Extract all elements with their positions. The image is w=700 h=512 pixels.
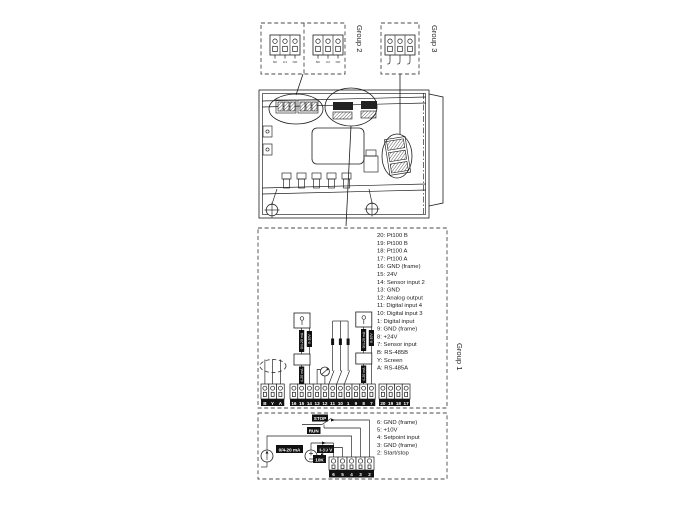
main-terminal-strip: 16 15 14 13 12 11 10 1 9 8 7 — [290, 384, 375, 406]
terminal-number: 19 — [388, 401, 394, 406]
setpoint-terminal-strip: 6 5 4 3 2 — [329, 457, 374, 478]
terminal-description: A: RS-485A — [377, 366, 408, 372]
signal-range-label: 0-10V — [370, 333, 374, 343]
wiring-diagram-page: NC C1 NO NC C2 NO Group 2 Group 3 — [0, 0, 700, 512]
terminal-number: 15 — [299, 401, 305, 406]
terminal-description: 13: GND — [377, 288, 400, 294]
terminal-description: 14: Sensor input 2 — [377, 280, 425, 286]
group2-label: Group 2 — [355, 25, 364, 52]
analog-output-meter — [317, 367, 329, 384]
setpoint-description-list: 6: GND (frame) 5: +10V 4: Setpoint input… — [377, 420, 420, 456]
sensor-assembly-right: 0/4-20 mA 0-10V 4-20 mA — [356, 312, 374, 384]
signal-output-label: 4-20 mA — [362, 367, 366, 381]
group1-label: Group 1 — [455, 343, 464, 370]
wire-hook-icon — [397, 59, 400, 65]
potentiometer-label: 10K — [315, 457, 324, 462]
signal-output-label: 4-20 mA — [300, 368, 304, 382]
terminal-description: 18: Pt100 A — [377, 249, 408, 255]
terminal-description: 12: Analog output — [377, 295, 423, 301]
terminal-description: 15: 24V — [377, 272, 397, 278]
digital-input-switches — [329, 321, 350, 384]
wiring-diagram: NC C1 NO NC C2 NO Group 2 Group 3 — [0, 0, 700, 512]
pin-label: NO — [336, 60, 341, 64]
terminal-number: 13 — [315, 401, 321, 406]
terminal-number: 4 — [350, 472, 353, 477]
wire-hook-icon — [387, 59, 390, 65]
terminal-description: 16: GND (frame) — [377, 264, 421, 270]
terminal-description: 8: +24V — [377, 334, 398, 340]
terminal-number: 7 — [370, 401, 373, 406]
terminal-number: 11 — [330, 401, 335, 406]
signal-range-label: 0/4-20 mA — [362, 331, 366, 348]
pt100-terminal-strip: 20 19 18 17 — [379, 384, 410, 406]
stop-label: STOP — [314, 416, 326, 421]
terminal-description: 11: Digital input 4 — [377, 303, 423, 309]
terminal-description: 7: Sensor input — [377, 342, 417, 348]
sensor-assembly-left: 0/4-20 mA 0-10V 4-20 mA — [294, 313, 312, 384]
terminal-number: 18 — [396, 401, 402, 406]
group3-box — [381, 23, 419, 74]
terminal-description: B: RS-485B — [377, 350, 408, 356]
signal-range-label: 0/4-20 mA — [300, 332, 304, 349]
housing — [312, 128, 364, 164]
mains-terminal-block — [384, 137, 410, 176]
terminal-number: 8 — [362, 401, 365, 406]
relay-connector-1: NC C1 NO — [270, 35, 300, 64]
terminal-number: 5 — [341, 472, 344, 477]
terminal-description-list: 20: Pt100 B 19: Pt100 B 18: Pt100 A 17: … — [377, 233, 425, 372]
current-signal-label: 0/4-20 mA — [279, 447, 301, 452]
pin-label: NC — [273, 60, 278, 64]
bus-terminal-block: B Y A — [260, 360, 286, 407]
terminal-number: 10 — [338, 401, 344, 406]
terminal-number: 12 — [322, 401, 328, 406]
terminal-description: 9: GND (frame) — [377, 327, 417, 333]
terminal-description: 20: Pt100 B — [377, 233, 408, 239]
terminal-number: 2 — [368, 472, 371, 477]
group2-box: NC C1 NO NC C2 NO — [261, 23, 345, 74]
earth-symbol — [265, 189, 280, 218]
terminal-description: Y: Screen — [377, 358, 403, 364]
setpoint-box: 6: GND (frame) 5: +10V 4: Setpoint input… — [258, 413, 447, 479]
terminal-description: 5: +10V — [377, 428, 398, 434]
mains-connector — [385, 35, 415, 64]
terminal-description: 1: Digital input — [377, 319, 415, 325]
terminal-description: 6: GND (frame) — [377, 420, 417, 426]
terminal-number: 14 — [307, 401, 313, 406]
group3-label: Group 3 — [430, 25, 439, 52]
pin-label: C1 — [283, 60, 287, 64]
terminal-description: 10: Digital input 3 — [377, 311, 423, 317]
earth-symbol — [365, 189, 380, 217]
terminal-number: Y — [271, 401, 274, 406]
terminal-number: 1 — [347, 401, 350, 406]
pin-label: NC — [316, 60, 321, 64]
signal-range-label: 0-10V — [308, 334, 312, 344]
relay-terminal-block — [269, 94, 323, 124]
terminal-description: 2: Start/stop — [377, 450, 409, 456]
terminal-box-drawing — [259, 88, 443, 218]
pin-label: NO — [293, 60, 298, 64]
run-label: RUN — [309, 429, 320, 434]
relay-connector-2: NC C2 NO — [313, 35, 343, 64]
terminal-description: 3: GND (frame) — [377, 443, 417, 449]
terminal-number: 6 — [332, 472, 335, 477]
terminal-number: 17 — [404, 401, 410, 406]
terminal-description: 17: Pt100 A — [377, 256, 408, 262]
terminal-description: 4: Setpoint input — [377, 435, 420, 441]
terminal-number: 3 — [359, 472, 362, 477]
terminal-description: 19: Pt100 B — [377, 241, 408, 247]
group1-box: 20: Pt100 B 19: Pt100 B 18: Pt100 A 17: … — [258, 228, 447, 408]
pin-label: C2 — [326, 60, 330, 64]
terminal-number: 16 — [291, 401, 297, 406]
terminal-number: 9 — [355, 401, 358, 406]
terminal-number: 20 — [380, 401, 386, 406]
wire-hook-icon — [407, 59, 410, 65]
